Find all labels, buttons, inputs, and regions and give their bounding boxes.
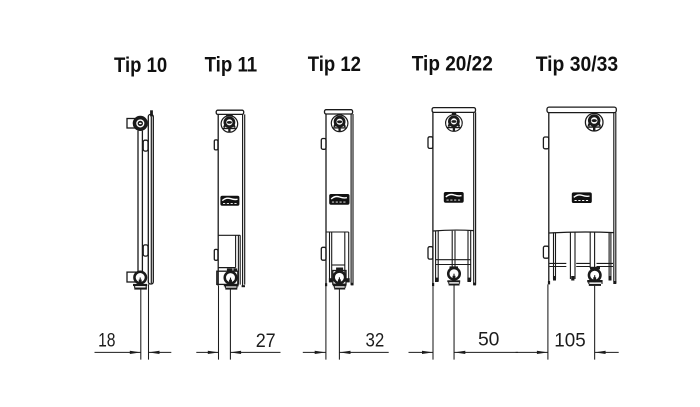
- svg-text:18: 18: [98, 330, 115, 352]
- svg-text:Tip 10: Tip 10: [114, 53, 167, 77]
- svg-text:50: 50: [478, 329, 500, 351]
- svg-text:105: 105: [554, 329, 585, 351]
- svg-text:Tip 30/33: Tip 30/33: [536, 52, 618, 76]
- svg-text:32: 32: [366, 329, 385, 351]
- svg-text:Tip 11: Tip 11: [205, 53, 258, 77]
- svg-text:Tip 12: Tip 12: [308, 52, 361, 76]
- svg-text:Tip 20/22: Tip 20/22: [412, 52, 493, 76]
- svg-text:27: 27: [256, 330, 276, 352]
